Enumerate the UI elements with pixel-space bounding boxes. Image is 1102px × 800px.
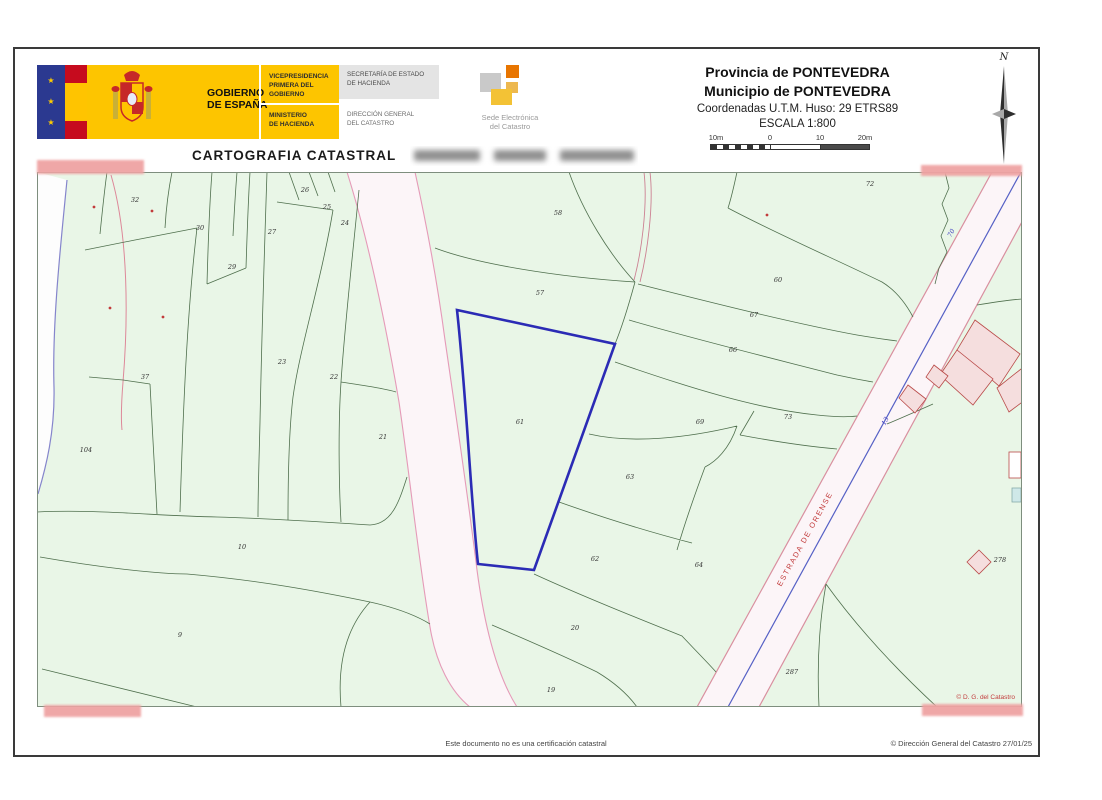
page-title: CARTOGRAFIA CATASTRAL	[192, 148, 396, 163]
parcel-number: 27	[267, 228, 277, 236]
parcel-number: 104	[80, 446, 92, 454]
parcel-number: 10	[238, 543, 246, 551]
redaction-strip	[37, 160, 144, 174]
parcel-number: 30	[196, 224, 204, 232]
subparcel-mark	[93, 206, 96, 209]
ministerio-label: MINISTERIO DE HACIENDA	[269, 111, 314, 129]
star-icon: ★	[47, 77, 54, 85]
redaction-strip	[44, 705, 141, 717]
sede-square-orange-icon	[506, 65, 519, 78]
scale-bar-graphic	[710, 144, 870, 150]
parcel-number: 60	[774, 276, 782, 284]
parcel-number: 66	[729, 346, 737, 354]
document-frame: ★ ★ ★ GOBIE	[13, 47, 1040, 757]
scale-tick-label: 10	[816, 133, 824, 142]
subparcel-mark	[109, 307, 112, 310]
direccion-general-box: DIRECCIÓN GENERAL DEL CATASTRO	[339, 105, 439, 139]
sede-square-yellow-icon	[491, 89, 512, 105]
parcel-number: 32	[131, 196, 139, 204]
parcel-number: 22	[329, 373, 338, 381]
government-logo: ★ ★ ★ GOBIE	[37, 65, 339, 139]
disclaimer-text: Este documento no es una certificación c…	[326, 739, 726, 748]
spain-flag-icon	[65, 65, 87, 139]
parcel-number: 58	[554, 209, 562, 217]
scale-tick-label: 10m	[709, 133, 724, 142]
sheet-header: Provincia de PONTEVEDRA Municipio de PON…	[615, 63, 980, 132]
coat-of-arms-icon	[109, 69, 155, 133]
scale-bar-thick	[820, 145, 869, 149]
province-title: Provincia de PONTEVEDRA	[615, 63, 980, 82]
parcel-number: 23	[277, 358, 286, 366]
redaction-strip	[922, 704, 1023, 716]
scale-text: ESCALA 1:800	[615, 117, 980, 132]
map-copyright: © D. G. del Catastro	[956, 693, 1015, 701]
eu-flag-icon: ★ ★ ★	[37, 65, 65, 139]
parcel-number: 69	[696, 418, 704, 426]
parcel-number: 37	[141, 373, 150, 381]
cadastral-map: ESTRADA DE ORENSE 70 13 © D. G. del Cata…	[37, 172, 1022, 707]
parcel-number: 19	[547, 686, 555, 694]
scale-bar-checker	[711, 145, 770, 149]
north-label: N	[999, 52, 1010, 63]
parcel-number: 20	[570, 624, 579, 632]
parcel-number: 73	[784, 413, 792, 421]
scale-tick-label: 20m	[858, 133, 873, 142]
parcel-number: 63	[626, 473, 634, 481]
parcel-number: 9	[178, 631, 182, 639]
parcel-number: 57	[536, 289, 545, 297]
sede-electronica-logo: Sede Electrónica del Catastro	[462, 65, 558, 141]
redacted-cadastral-reference	[410, 146, 638, 166]
parcel-number: 25	[322, 203, 331, 211]
scale-bar-thin	[770, 145, 819, 149]
north-arrow-icon: N	[990, 50, 1018, 166]
redaction-strip	[921, 165, 1022, 176]
subparcel-mark	[151, 210, 154, 213]
parcel-number: 287	[785, 668, 799, 676]
parcel-number: 24	[340, 219, 349, 227]
subparcel-mark	[766, 214, 769, 217]
parcel-number: 67	[750, 311, 759, 319]
secretaria-box: SECRETARÍA DE ESTADO DE HACIENDA	[339, 65, 439, 99]
parcel-number: 62	[591, 555, 599, 563]
parcel-number: 21	[378, 433, 387, 441]
parcel-number: 72	[866, 180, 874, 188]
parcel-number: 61	[516, 418, 524, 426]
vicepresidencia-label: VICEPRESIDENCIA PRIMERA DEL GOBIERNO	[269, 72, 339, 99]
scale-bar: 10m 0 10 20m	[710, 133, 870, 155]
footer-copyright: © Dirección General del Catastro 27/01/2…	[891, 739, 1032, 748]
star-icon: ★	[47, 98, 54, 106]
sede-electronica-label: Sede Electrónica del Catastro	[462, 113, 558, 131]
ministry-yellow-panel: GOBIERNO DE ESPAÑA VICEPRESIDENCIA PRIME…	[87, 65, 339, 139]
subparcel-mark	[162, 316, 165, 319]
utm-coordinates: Coordenadas U.T.M. Huso: 29 ETRS89	[615, 101, 980, 117]
parcel-number: 29	[227, 263, 236, 271]
star-icon: ★	[47, 119, 54, 127]
municipality-title: Municipio de PONTEVEDRA	[615, 82, 980, 101]
page: ★ ★ ★ GOBIE	[0, 0, 1102, 800]
parcel-number: 278	[993, 556, 1006, 564]
scale-tick-label: 0	[768, 133, 772, 142]
parcel-number: 64	[695, 561, 703, 569]
parcel-number: 26	[300, 186, 309, 194]
